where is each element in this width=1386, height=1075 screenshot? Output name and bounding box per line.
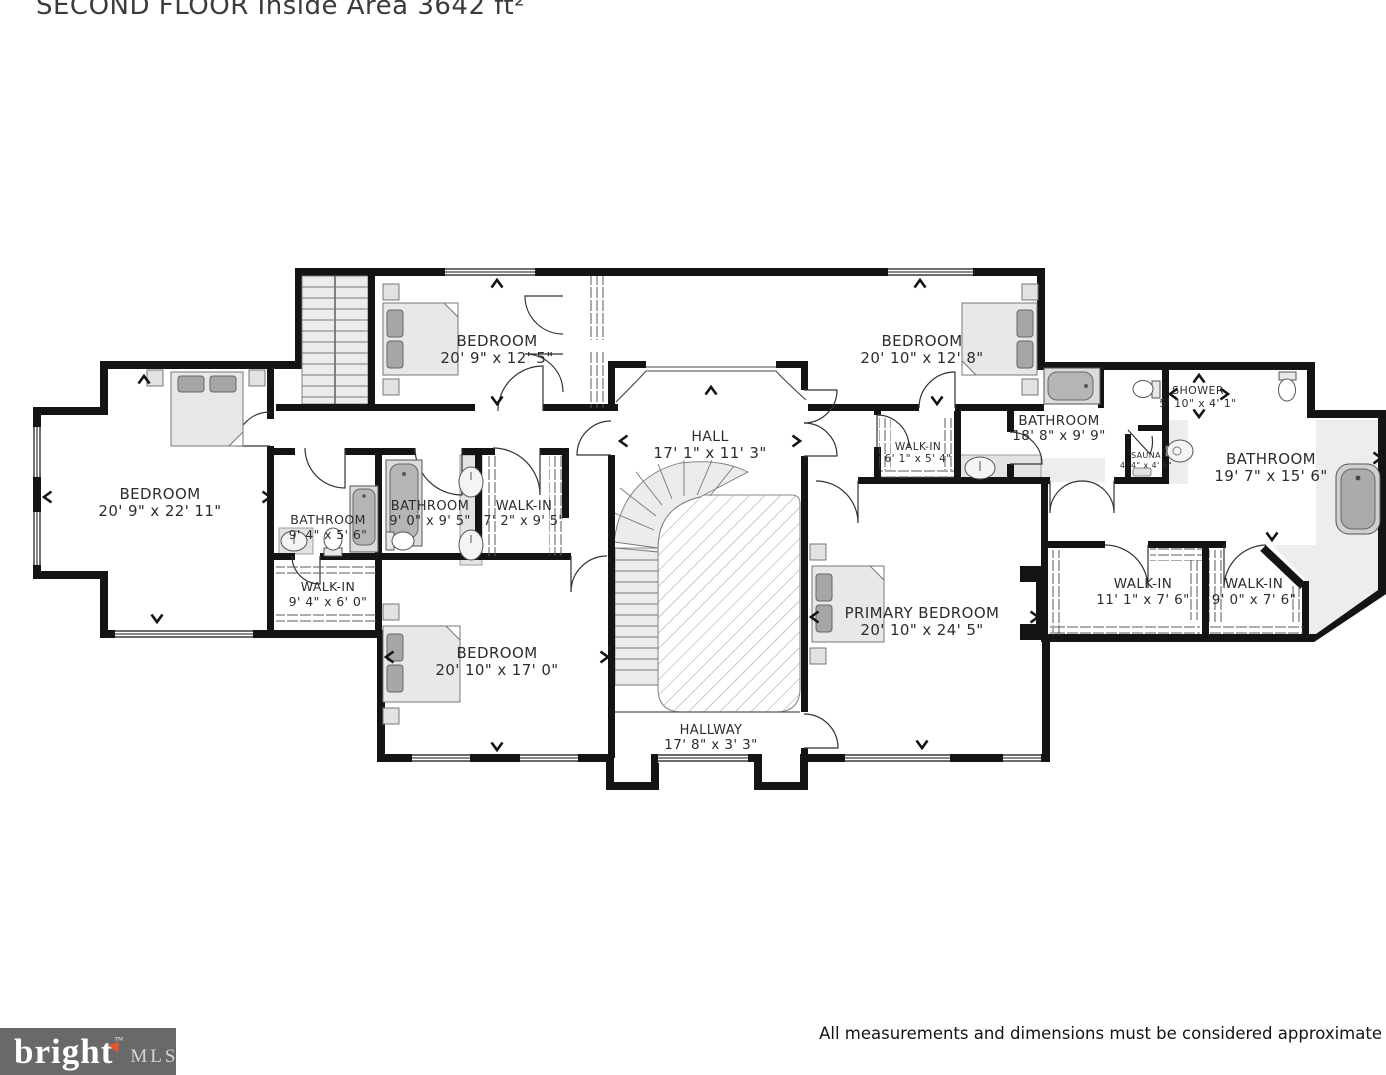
room-label-walk-in-left: WALK-IN: [301, 579, 355, 594]
room-label-bathroom-top-right: BATHROOM: [1018, 413, 1099, 429]
brightmls-logo: bright™ MLS: [0, 1028, 176, 1075]
room-dims-bedroom-top-left: 20' 9" x 12' 5": [440, 349, 553, 367]
room-label-bedroom-top-left: BEDROOM: [456, 332, 537, 350]
room-dims-shower: 5' 10" x 4' 1": [1159, 397, 1236, 410]
chimney-notch: [1020, 582, 1036, 624]
toilet-top-right: [1133, 381, 1160, 399]
room-label-bedroom-bottom: BEDROOM: [456, 644, 537, 662]
room-dims-primary-bedroom: 20' 10" x 24' 5": [860, 621, 983, 639]
staircase-top-left: [302, 276, 368, 404]
room-label-bedroom-top-right: BEDROOM: [881, 332, 962, 350]
room-label-primary-bedroom: PRIMARY BEDROOM: [845, 604, 1000, 622]
floor-plan: BEDROOM20' 9" x 12' 5"BEDROOM20' 10" x 1…: [0, 0, 1386, 1075]
footer-disclaimer: All measurements and dimensions must be …: [819, 1024, 1382, 1043]
room-label-bathroom-left: BATHROOM: [290, 512, 366, 527]
toilet-right: [1279, 372, 1297, 401]
room-dims-walk-in-left: 9' 4" x 6' 0": [289, 594, 368, 609]
room-label-walk-in-9: WALK-IN: [1225, 576, 1284, 592]
room-label-hall: HALL: [691, 429, 728, 445]
room-label-walk-in-middle: WALK-IN: [496, 499, 553, 514]
room-label-bathroom-right: BATHROOM: [1226, 450, 1316, 468]
sink-middle-2: [459, 530, 483, 560]
room-dims-walk-in-9: 9' 0" x 7' 6": [1212, 592, 1297, 608]
logo-brand: bright™: [14, 1034, 123, 1069]
room-label-bedroom-left: BEDROOM: [119, 485, 200, 503]
logo-suffix: MLS: [130, 1046, 178, 1068]
room-dims-hallway: 17' 8" x 3' 3": [664, 737, 758, 753]
stairwell-void: [658, 495, 800, 712]
room-dims-bathroom-middle: 9' 0" x 9' 5": [389, 514, 471, 529]
grand-staircase: [612, 460, 800, 712]
room-dims-bedroom-bottom: 20' 10" x 17' 0": [435, 661, 558, 679]
room-dims-sauna: 4' 4" x 4' 6": [1120, 461, 1172, 470]
room-label-sauna: SAUNA: [1131, 451, 1161, 460]
room-dims-bathroom-top-right: 18' 8" x 9' 9": [1012, 428, 1106, 444]
room-dims-bedroom-top-right: 20' 10" x 12' 8": [860, 349, 983, 367]
room-label-walk-in-11: WALK-IN: [1114, 576, 1173, 592]
sink-pedestal-right: [1166, 440, 1193, 462]
room-label-bathroom-middle: BATHROOM: [391, 499, 469, 514]
room-dims-bathroom-left: 9' 4" x 5' 6": [289, 527, 368, 542]
room-label-shower: SHOWER: [1172, 384, 1224, 397]
sink-middle-1: [459, 467, 483, 497]
room-dims-bedroom-left: 20' 9" x 22' 11": [98, 502, 221, 520]
room-dims-hall: 17' 1" x 11' 3": [653, 444, 766, 462]
room-label-hallway: HALLWAY: [680, 723, 743, 738]
room-dims-walk-in-small: 6' 1" x 5' 4": [885, 453, 952, 465]
toilet-middle: [386, 532, 414, 550]
sink-corridor: [965, 457, 995, 479]
room-dims-walk-in-middle: 7' 2" x 9' 5": [483, 514, 565, 529]
room-dims-bathroom-right: 19' 7" x 15' 6": [1214, 467, 1327, 485]
bathtub-right: [1336, 464, 1380, 534]
bathtub-top-right: [1044, 368, 1100, 404]
room-dims-walk-in-11: 11' 1" x 7' 6": [1096, 592, 1190, 608]
room-label-walk-in-small: WALK-IN: [895, 441, 941, 453]
